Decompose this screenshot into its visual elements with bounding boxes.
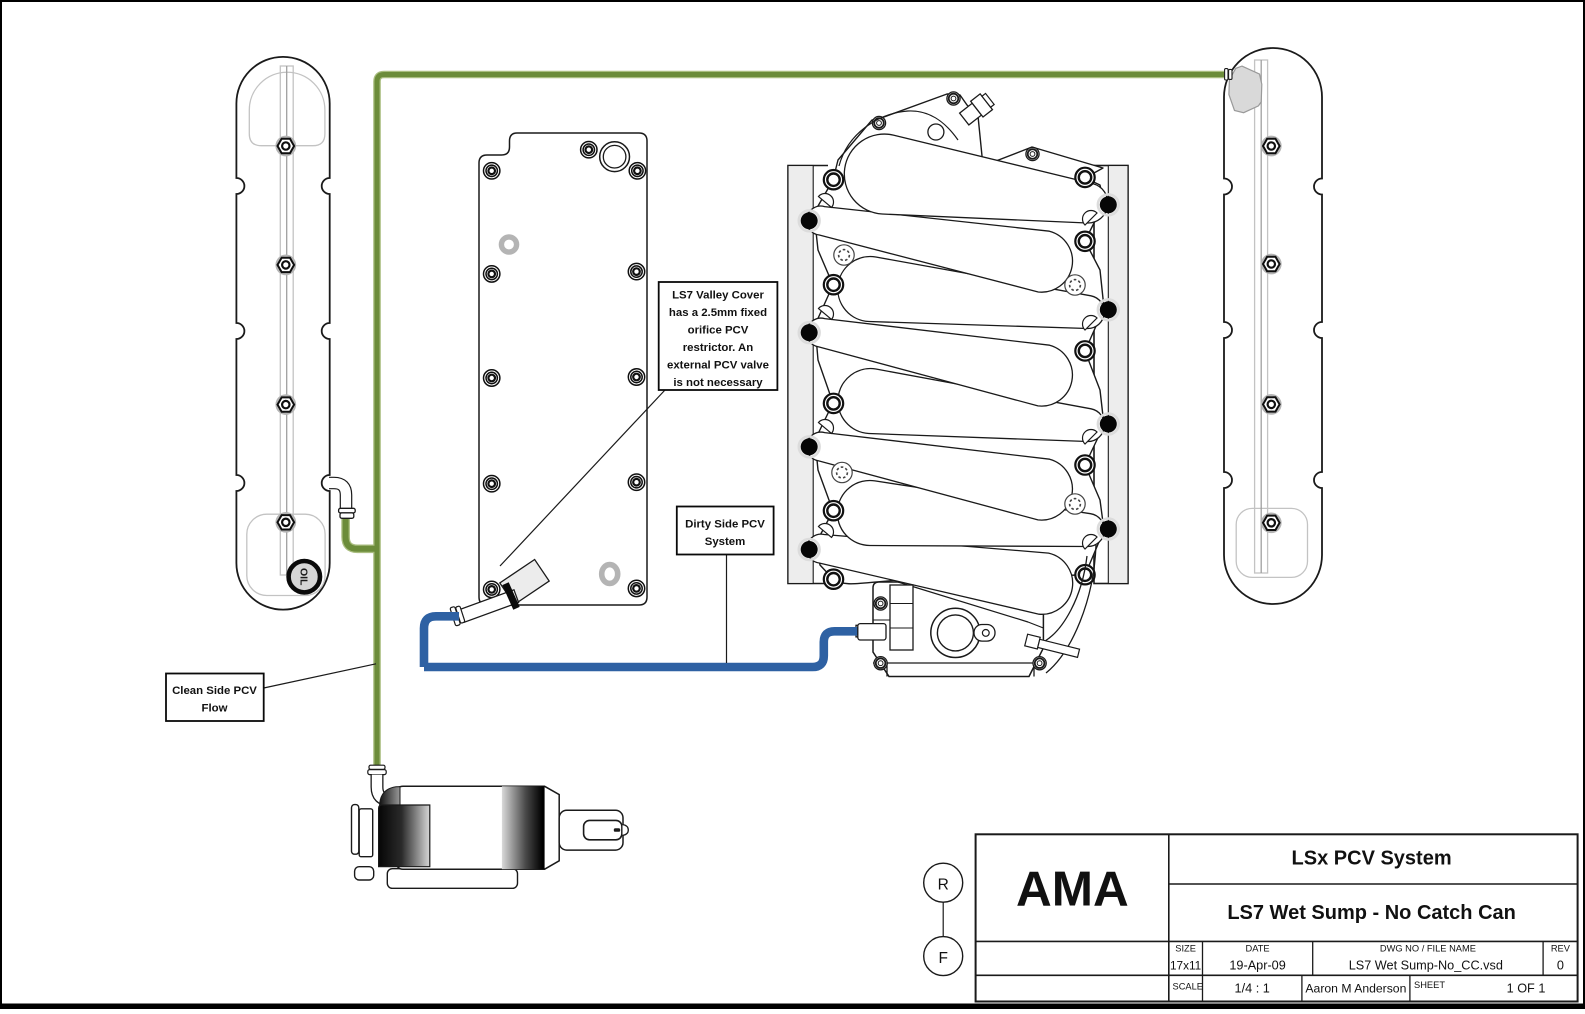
- svg-text:17x11: 17x11: [1170, 959, 1201, 973]
- svg-text:Dirty Side PCV: Dirty Side PCV: [685, 519, 765, 531]
- svg-text:DWG NO / FILE NAME: DWG NO / FILE NAME: [1380, 944, 1476, 954]
- svg-text:19-Apr-09: 19-Apr-09: [1229, 959, 1285, 973]
- svg-text:Clean Side PCV: Clean Side PCV: [172, 685, 257, 697]
- svg-text:orifice PCV: orifice PCV: [688, 325, 749, 337]
- svg-text:restrictor. An: restrictor. An: [683, 342, 754, 354]
- svg-text:AMA: AMA: [1016, 862, 1129, 917]
- svg-text:SHEET: SHEET: [1414, 980, 1445, 990]
- svg-text:LS7 Wet Sump - No Catch Can: LS7 Wet Sump - No Catch Can: [1227, 902, 1516, 924]
- svg-text:is not necessary: is not necessary: [673, 377, 763, 389]
- svg-text:DATE: DATE: [1246, 944, 1270, 954]
- svg-text:REV: REV: [1551, 944, 1571, 954]
- svg-text:LSx PCV System: LSx PCV System: [1292, 848, 1452, 870]
- svg-text:0: 0: [1557, 959, 1564, 973]
- svg-text:1 OF 1: 1 OF 1: [1507, 982, 1546, 996]
- svg-text:F: F: [938, 950, 947, 967]
- svg-text:LS7 Valley Cover: LS7 Valley Cover: [672, 290, 764, 302]
- svg-text:SIZE: SIZE: [1175, 944, 1196, 954]
- svg-text:SCALE: SCALE: [1173, 982, 1204, 992]
- svg-text:LS7 Wet Sump-No_CC.vsd: LS7 Wet Sump-No_CC.vsd: [1349, 959, 1503, 973]
- svg-text:System: System: [705, 536, 746, 548]
- svg-text:1/4 : 1: 1/4 : 1: [1235, 982, 1270, 996]
- svg-text:Flow: Flow: [202, 703, 228, 715]
- svg-text:has a 2.5mm fixed: has a 2.5mm fixed: [669, 307, 767, 319]
- svg-text:R: R: [938, 877, 949, 894]
- svg-text:Aaron M Anderson: Aaron M Anderson: [1305, 982, 1406, 996]
- svg-text:external PCV valve: external PCV valve: [667, 360, 769, 372]
- svg-text:OIL: OIL: [298, 568, 310, 586]
